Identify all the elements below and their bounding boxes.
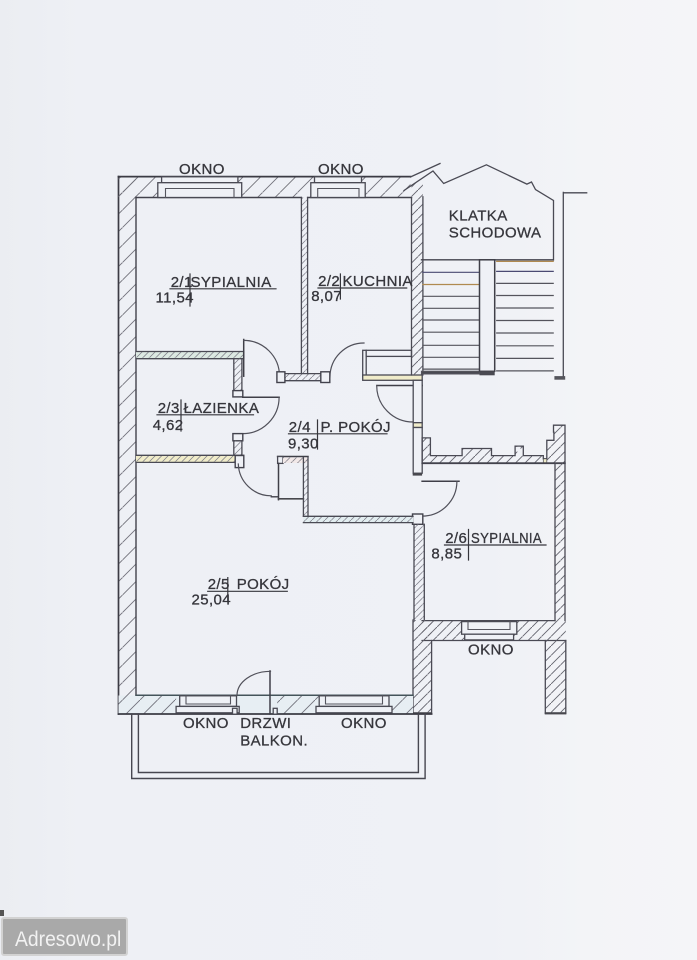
svg-text:BALKON.: BALKON. xyxy=(240,733,308,750)
svg-text:OKNO: OKNO xyxy=(183,715,229,732)
svg-text:OKNO: OKNO xyxy=(468,642,514,659)
svg-text:DRZWI: DRZWI xyxy=(240,715,291,732)
svg-text:OKNO: OKNO xyxy=(179,161,225,178)
svg-text:OKNO: OKNO xyxy=(318,161,364,178)
svg-text:OKNO: OKNO xyxy=(341,715,387,732)
svg-text:11,54: 11,54 xyxy=(156,290,194,307)
svg-text:8,85: 8,85 xyxy=(431,546,462,563)
svg-text:KLATKA: KLATKA xyxy=(449,208,508,225)
svg-text:9,30: 9,30 xyxy=(288,436,319,453)
svg-text:POKÓJ: POKÓJ xyxy=(237,576,290,593)
svg-text:2/5: 2/5 xyxy=(208,576,230,593)
svg-text:SCHODOWA: SCHODOWA xyxy=(449,225,542,242)
svg-text:25,04: 25,04 xyxy=(192,592,232,609)
svg-text:4,62: 4,62 xyxy=(153,417,184,434)
svg-text:8,07: 8,07 xyxy=(311,288,342,305)
